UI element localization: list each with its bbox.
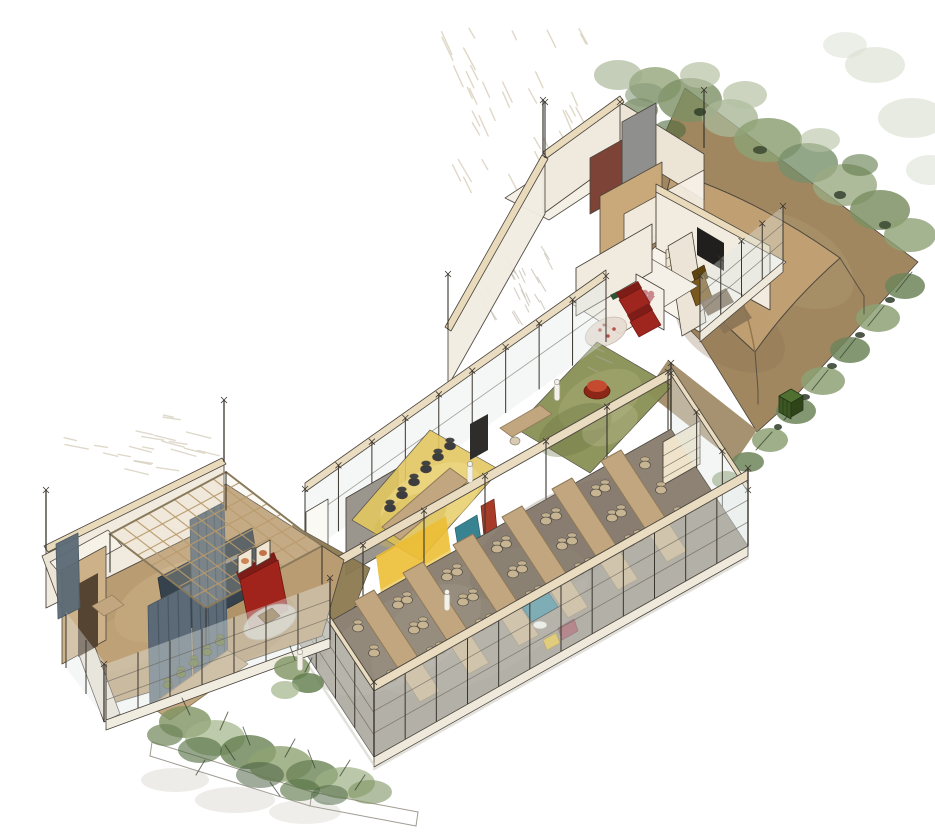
- pouf-top: [587, 380, 607, 392]
- illustration-canvas: [0, 0, 935, 836]
- sketch-figure: [444, 589, 449, 608]
- leftroom-corner-posts: [43, 487, 49, 550]
- scene-svg: [0, 0, 935, 836]
- sketch-figure: [554, 379, 559, 398]
- garden-foliage-corner: [823, 32, 935, 185]
- sketch-figure: [467, 461, 472, 480]
- office-chair: [510, 437, 520, 445]
- sketch-figure: [297, 649, 302, 668]
- leftroom-corner-posts: [221, 397, 227, 462]
- hatch-left: [64, 415, 219, 474]
- curtain: [56, 533, 80, 619]
